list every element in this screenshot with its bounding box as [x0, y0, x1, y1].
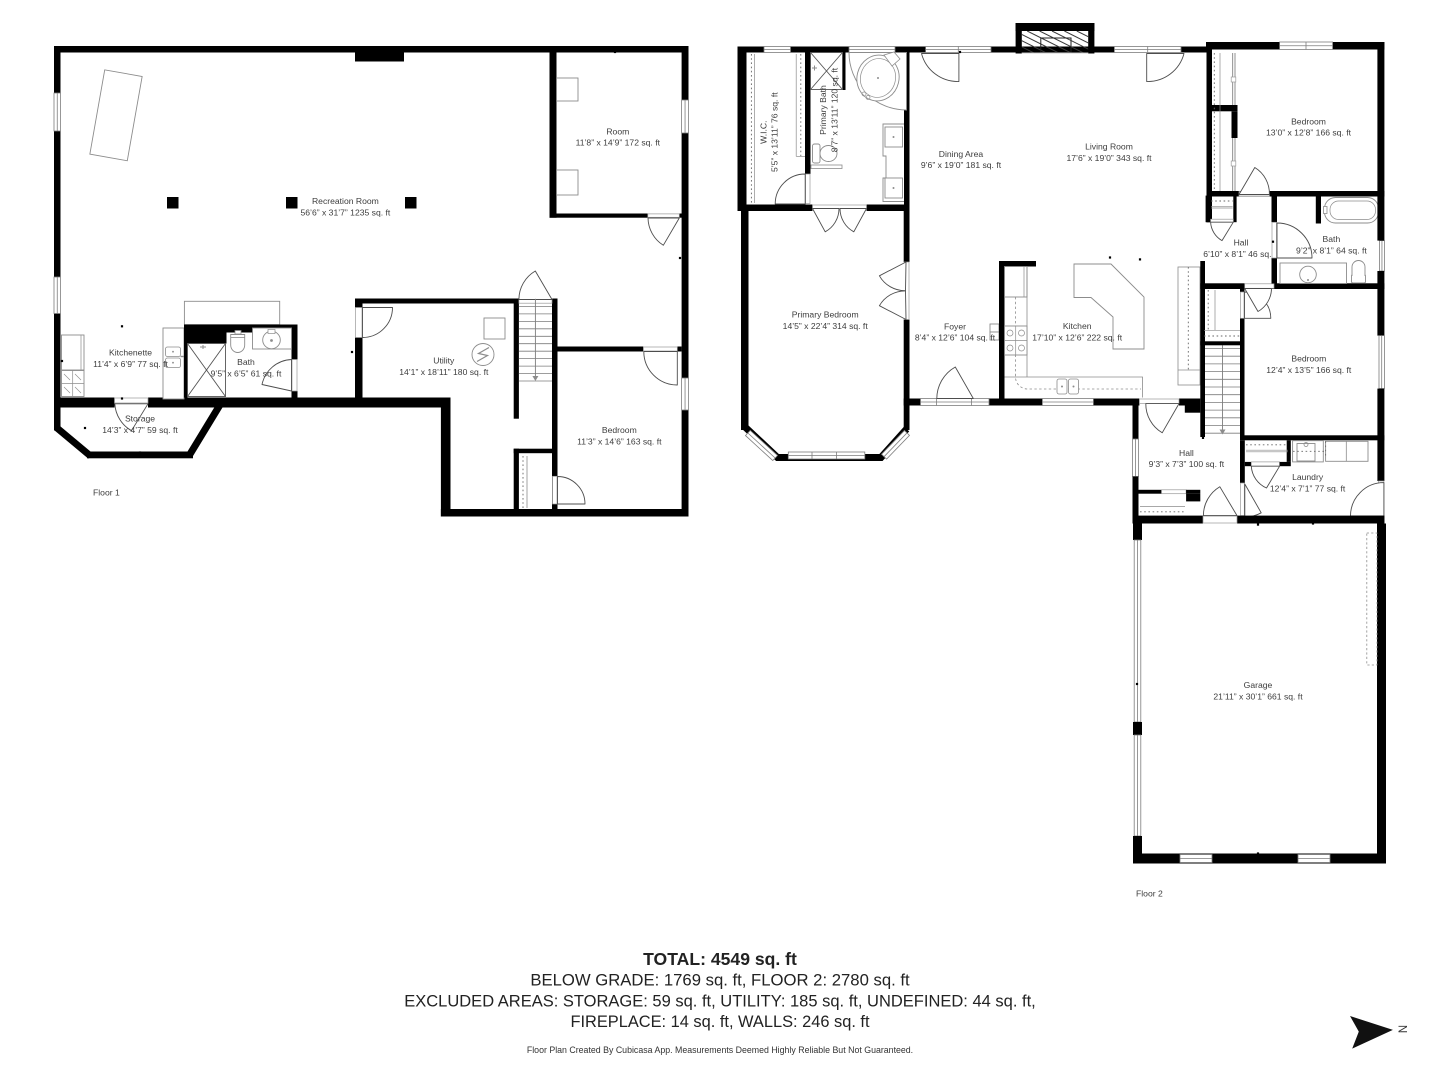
- svg-text:Foyer: Foyer: [944, 321, 966, 331]
- svg-text:Bath: Bath: [1323, 234, 1341, 244]
- svg-text:Floor 1: Floor 1: [93, 488, 120, 498]
- svg-text:Primary Bedroom: Primary Bedroom: [792, 310, 859, 320]
- svg-text:Kitchenette: Kitchenette: [109, 348, 152, 358]
- svg-text:Hall: Hall: [1179, 448, 1194, 458]
- svg-text:13’0” x 12’8” 166 sq. ft: 13’0” x 12’8” 166 sq. ft: [1266, 128, 1352, 138]
- svg-text:12’4” x 7’1” 77 sq. ft: 12’4” x 7’1” 77 sq. ft: [1270, 483, 1346, 493]
- svg-text:Bedroom: Bedroom: [602, 425, 637, 435]
- svg-text:11’4” x 6’9” 77 sq. ft: 11’4” x 6’9” 77 sq. ft: [93, 359, 168, 369]
- svg-text:TOTAL: 4549 sq. ft: TOTAL: 4549 sq. ft: [643, 949, 797, 969]
- svg-text:9’3” x 7’3” 100 sq. ft: 9’3” x 7’3” 100 sq. ft: [1149, 459, 1225, 469]
- svg-text:Hall: Hall: [1234, 238, 1249, 248]
- svg-text:W.I.C.: W.I.C.: [758, 120, 768, 143]
- svg-text:Room: Room: [606, 126, 629, 136]
- svg-text:56’6” x 31’7” 1235 sq. ft: 56’6” x 31’7” 1235 sq. ft: [300, 208, 390, 218]
- svg-text:14’5” x 22’4” 314 sq. ft: 14’5” x 22’4” 314 sq. ft: [783, 321, 869, 331]
- svg-text:8’4” x 12’6” 104 sq. ft: 8’4” x 12’6” 104 sq. ft: [915, 333, 996, 343]
- svg-text:9’2” x 8’1” 64 sq. ft: 9’2” x 8’1” 64 sq. ft: [1296, 245, 1367, 255]
- svg-text:N: N: [1396, 1025, 1408, 1033]
- svg-text:6’10” x 8’1” 46 sq. ft: 6’10” x 8’1” 46 sq. ft: [1203, 249, 1279, 259]
- svg-text:Primary Bath: Primary Bath: [818, 85, 828, 135]
- svg-text:9’5” x 6’5” 61 sq. ft: 9’5” x 6’5” 61 sq. ft: [211, 368, 282, 378]
- svg-text:21’11” x 30’1” 661 sq. ft: 21’11” x 30’1” 661 sq. ft: [1213, 691, 1303, 701]
- svg-text:8’7” x 13’11” 120 sq. ft: 8’7” x 13’11” 120 sq. ft: [829, 67, 839, 152]
- svg-text:EXCLUDED AREAS: STORAGE: 59 sq: EXCLUDED AREAS: STORAGE: 59 sq. ft, UTIL…: [404, 993, 1036, 1011]
- svg-text:BELOW GRADE: 1769 sq. ft, FLOO: BELOW GRADE: 1769 sq. ft, FLOOR 2: 2780 …: [530, 971, 910, 990]
- svg-text:14’1” x 18’11” 180 sq. ft: 14’1” x 18’11” 180 sq. ft: [399, 367, 489, 377]
- svg-text:Floor 2: Floor 2: [1136, 889, 1163, 899]
- svg-text:Dining Area: Dining Area: [939, 149, 984, 159]
- svg-text:11’3” x 14’6” 163 sq. ft: 11’3” x 14’6” 163 sq. ft: [577, 436, 662, 446]
- svg-text:Storage: Storage: [125, 414, 155, 424]
- svg-text:Kitchen: Kitchen: [1063, 321, 1092, 331]
- svg-text:12’4” x 13’5” 166 sq. ft: 12’4” x 13’5” 166 sq. ft: [1266, 365, 1352, 375]
- svg-text:14’3” x 4’7” 59 sq. ft: 14’3” x 4’7” 59 sq. ft: [102, 425, 178, 435]
- svg-text:11’8” x 14’9” 172 sq. ft: 11’8” x 14’9” 172 sq. ft: [576, 138, 661, 148]
- svg-text:9’6” x 19’0” 181 sq. ft: 9’6” x 19’0” 181 sq. ft: [921, 160, 1002, 170]
- svg-text:Bedroom: Bedroom: [1291, 354, 1326, 364]
- svg-text:Garage: Garage: [1244, 680, 1273, 690]
- svg-text:5’5” x 13’11” 76 sq. ft: 5’5” x 13’11” 76 sq. ft: [770, 92, 780, 172]
- svg-text:Living Room: Living Room: [1085, 142, 1133, 152]
- svg-text:FIREPLACE: 14 sq. ft, WALLS: 2: FIREPLACE: 14 sq. ft, WALLS: 246 sq. ft: [570, 1013, 870, 1031]
- svg-text:Utility: Utility: [433, 356, 455, 366]
- svg-text:Bath: Bath: [237, 357, 255, 367]
- svg-text:17’6” x 19’0” 343 sq. ft: 17’6” x 19’0” 343 sq. ft: [1066, 153, 1152, 163]
- svg-text:Floor Plan Created By Cubicasa: Floor Plan Created By Cubicasa App. Meas…: [527, 1045, 913, 1055]
- svg-text:Laundry: Laundry: [1292, 472, 1324, 482]
- svg-text:17’10” x 12’6” 222 sq. ft: 17’10” x 12’6” 222 sq. ft: [1032, 332, 1122, 342]
- svg-text:Bedroom: Bedroom: [1291, 116, 1326, 126]
- svg-text:Recreation Room: Recreation Room: [312, 196, 379, 206]
